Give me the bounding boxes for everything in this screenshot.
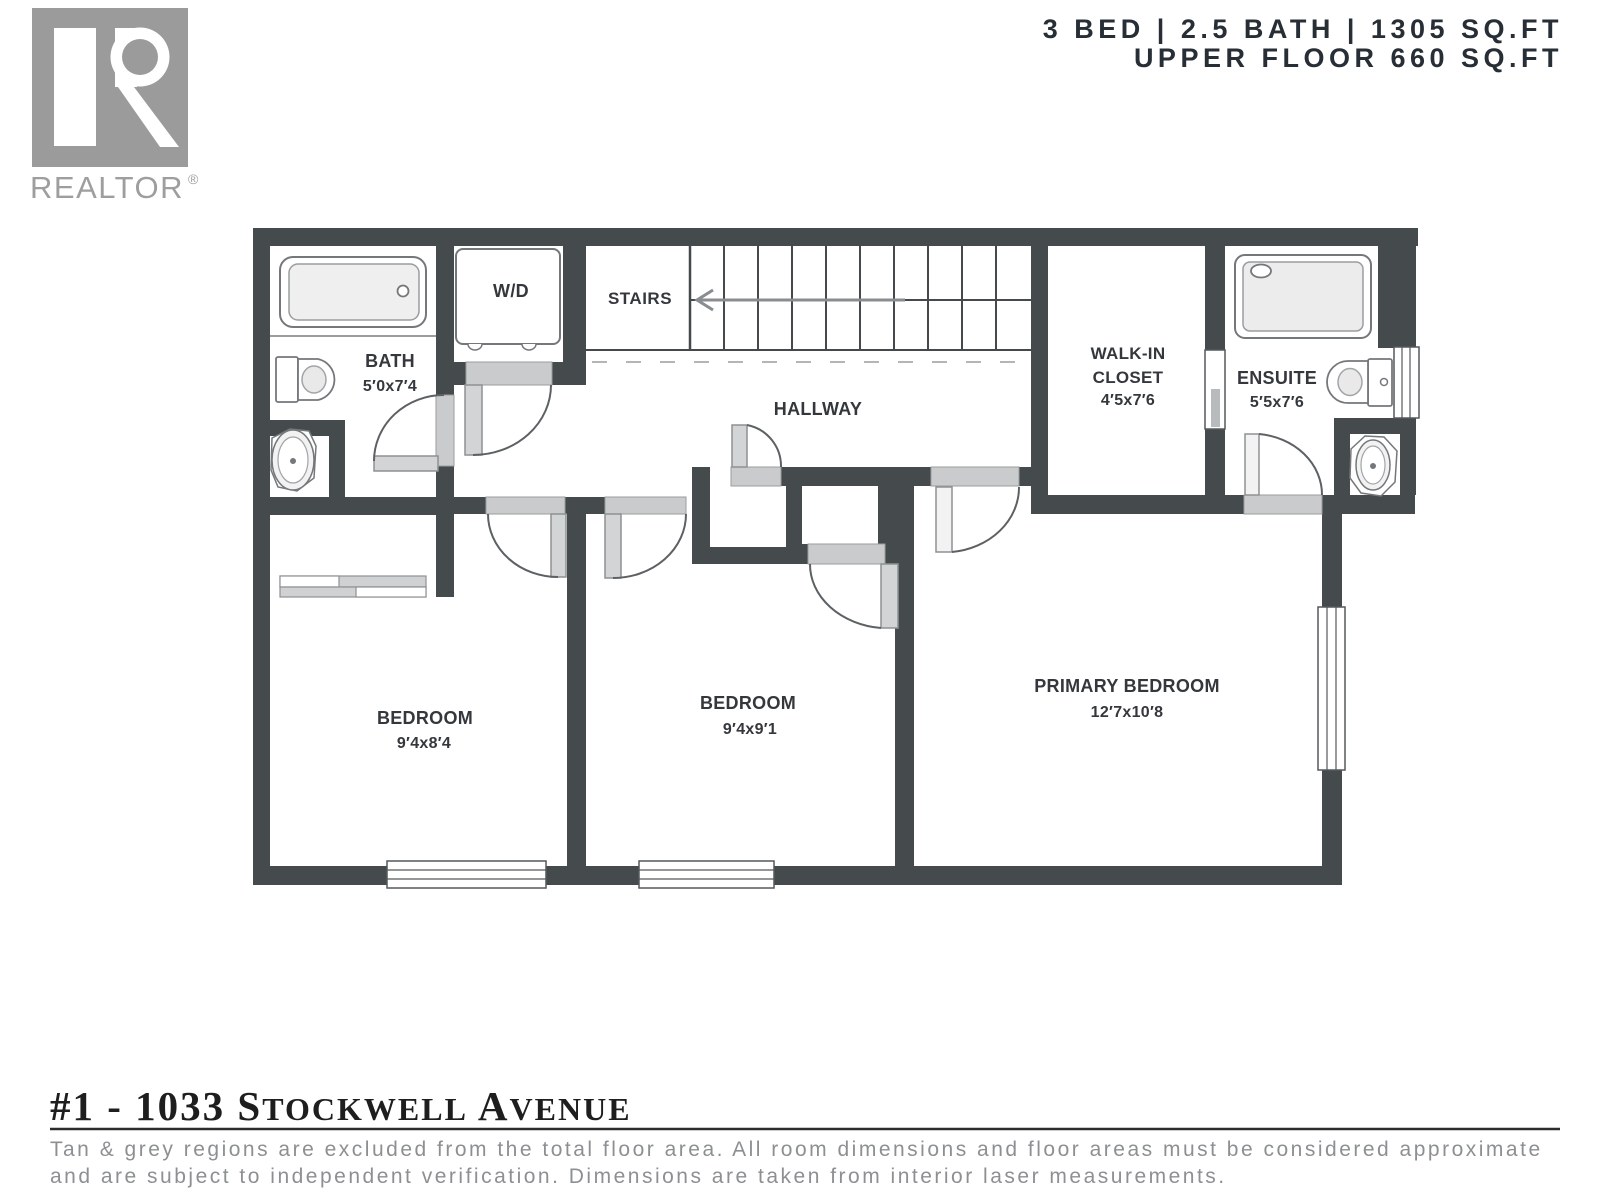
svg-text:and are subject to independent: and are subject to independent verificat… [50,1165,1227,1188]
svg-text:REALTOR: REALTOR [30,170,184,205]
svg-text:STAIRS: STAIRS [608,289,672,308]
svg-text:ENSUITE: ENSUITE [1237,368,1317,388]
svg-text:5′5x7′6: 5′5x7′6 [1250,394,1304,411]
svg-text:9′4x9′1: 9′4x9′1 [723,721,777,738]
svg-text:4′5x7′6: 4′5x7′6 [1101,392,1155,409]
svg-text:CLOSET: CLOSET [1093,368,1164,387]
svg-text:12′7x10′8: 12′7x10′8 [1091,704,1164,721]
svg-text:5′0x7′4: 5′0x7′4 [363,378,417,395]
svg-text:HALLWAY: HALLWAY [774,399,862,419]
svg-text:UPPER FLOOR 660 SQ.FT: UPPER FLOOR 660 SQ.FT [1134,43,1563,73]
svg-text:3 BED | 2.5 BATH | 1305 SQ.FT: 3 BED | 2.5 BATH | 1305 SQ.FT [1043,14,1563,44]
svg-text:BEDROOM: BEDROOM [700,693,796,713]
svg-text:W/D: W/D [493,281,529,301]
svg-text:Tan & grey regions are exclude: Tan & grey regions are excluded from the… [50,1138,1543,1161]
svg-text:WALK-IN: WALK-IN [1091,344,1166,363]
svg-text:BATH: BATH [365,351,415,371]
svg-text:BEDROOM: BEDROOM [377,708,473,728]
svg-text:9′4x8′4: 9′4x8′4 [397,735,451,752]
svg-text:®: ® [188,171,199,187]
svg-text:PRIMARY BEDROOM: PRIMARY BEDROOM [1034,676,1220,696]
